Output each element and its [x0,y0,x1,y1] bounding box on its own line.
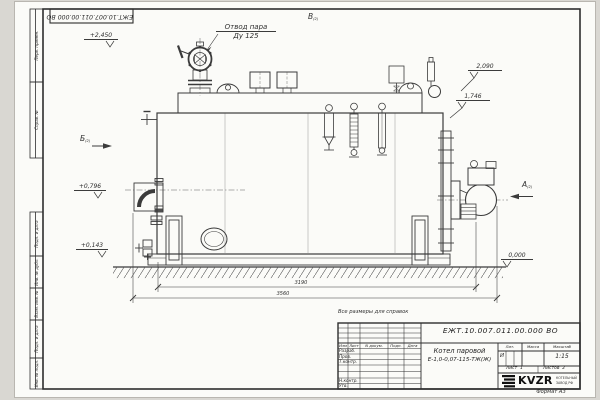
burner [451,161,497,220]
sheets-label: Листов 2 [543,367,565,372]
water-level-gauges [323,103,388,157]
lit-value: И [498,354,506,360]
safety-valves [250,72,297,93]
top-stamp-number: ЕЖТ.10.007.011.00.000 ВО [50,9,133,23]
boiler-drawing [92,34,533,303]
elevation-top: +2,450 [84,33,118,41]
row-tkontr: Т.контр. [339,360,357,364]
product-type: Е-1,0-0,07-115-ТЖ(Ж) [421,358,498,364]
scale-value: 1:15 [544,354,580,360]
company-tagline-1: КОТЕЛЬНЫЙ [556,376,577,380]
rear-door [438,131,454,251]
col-data: Дата [404,344,421,348]
elevation-upper-right: 2,090 [468,64,502,72]
mass-header: Масса [522,345,544,349]
view-marker-b: Б(2) [80,135,90,144]
stamp-perv-primen: Перв. примен. [34,9,39,82]
stamp-inv-podl: Инв. № подл. [34,358,39,389]
company-cell: KVZR КОТЕЛЬНЫЙ ЗАВОД РФ [500,374,578,388]
col-list: Лист [348,344,360,348]
company-name: KVZR [518,374,553,387]
front-fittings [134,112,163,261]
dimension-overall-length: 3560 [268,292,298,297]
col-podp: Подп. [388,344,404,348]
dome-left [217,84,239,93]
scale-header: Масштаб [544,345,580,349]
leader-line [207,34,218,51]
elevation-feed: +0,796 [74,184,106,192]
lit-header: Лит. [498,345,522,349]
base-frame [148,254,450,265]
steam-drum [178,93,422,113]
dimension-boiler-length: 3190 [286,281,316,286]
dome-right [399,83,422,93]
stamp-vzam-inv: Взам. инв. № [34,288,39,320]
product-name: Котел паровой [421,348,498,355]
view-arrows [92,143,533,199]
reference-note: Все размеры для справок [338,310,408,315]
view-marker-a: А(2) [522,181,532,190]
col-doc: N докум. [360,344,388,348]
elevation-drum: 1,746 [456,94,490,102]
boiler-body [157,113,443,254]
format-label: Формат А3 [516,390,586,395]
company-tagline-2: ЗАВОД РФ [556,381,573,385]
col-izm: Изм [338,344,348,348]
stamp-podp-data-2: Подп. и дата [34,320,39,358]
stamp-sprav-no: Справ. № [34,82,39,158]
stamp-podp-data-1: Подп. и дата [34,212,39,256]
row-utv: Утв. [339,384,348,388]
steam-outlet-dn: Ду 125 [222,33,270,40]
view-marker-v: В(2) [308,13,318,22]
sheet-label: Лист 1 [506,367,523,372]
support-legs [166,216,428,265]
pressure-gauge-assembly [389,58,441,98]
drawing-linework [0,0,600,400]
titleblock-doc-number: ЕЖТ.10.007.011.00.000 ВО [421,327,580,335]
manhole-icon [201,228,227,250]
elevation-ground: 0,000 [501,253,533,261]
elevation-lower: +0,143 [76,243,108,251]
kvzr-logo-icon [502,375,516,388]
stamp-inv-dubl: Инв. № дубл. [34,256,39,288]
